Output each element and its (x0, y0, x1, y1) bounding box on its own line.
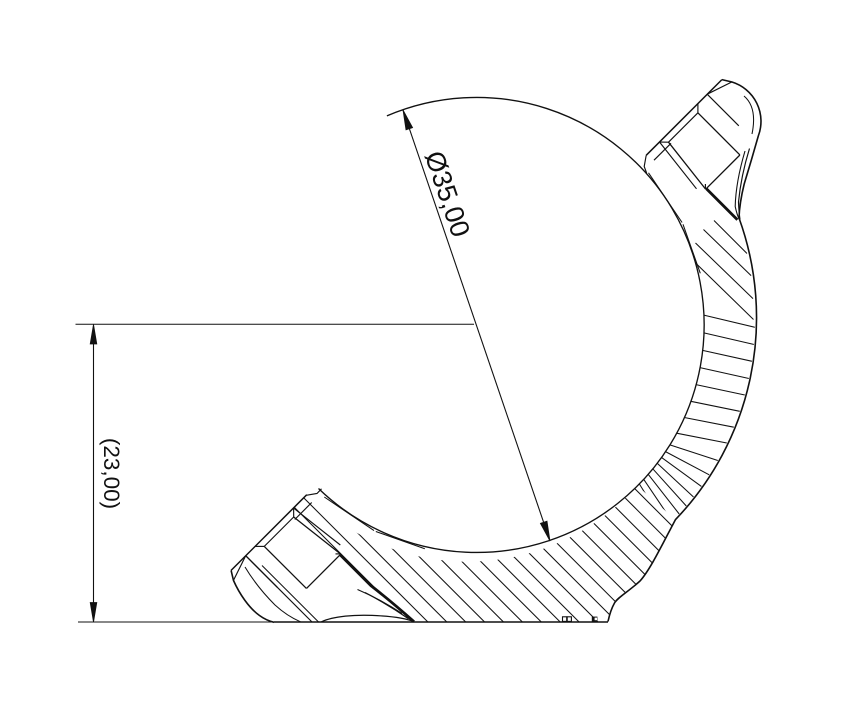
svg-text:(23,00): (23,00) (99, 438, 124, 509)
